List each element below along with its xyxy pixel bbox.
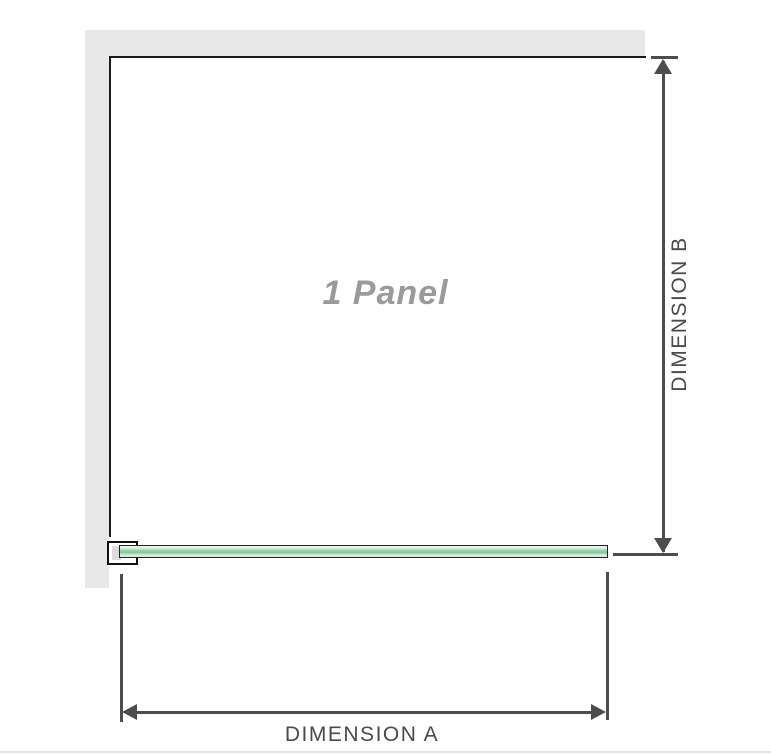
dimension-b-arrow-up-icon xyxy=(654,59,672,74)
page-bottom-rule xyxy=(0,751,771,753)
dimension-a-arrow-right-icon xyxy=(591,704,606,720)
wall-left xyxy=(85,30,109,588)
panel-count-label: 1 Panel xyxy=(293,274,478,313)
glass-panel xyxy=(119,545,608,558)
dimension-b-label: DIMENSION B xyxy=(668,234,692,394)
dimension-b-tick-bottom xyxy=(613,553,678,556)
wall-top xyxy=(85,30,645,57)
dimension-a-label: DIMENSION A xyxy=(262,723,462,747)
wall-top-inner-edge xyxy=(109,56,646,58)
dimension-a-arrow-left-icon xyxy=(122,704,137,720)
dimension-a-extension-left xyxy=(120,574,123,722)
panel-configuration-diagram: 1 Panel DIMENSION B DIMENSION A xyxy=(0,0,771,755)
wall-left-inner-edge xyxy=(109,56,111,537)
dimension-b-arrow-down-icon xyxy=(654,538,672,553)
dimension-b-line xyxy=(662,61,665,552)
dimension-a-extension-right xyxy=(606,572,609,720)
dimension-a-line xyxy=(126,711,602,714)
